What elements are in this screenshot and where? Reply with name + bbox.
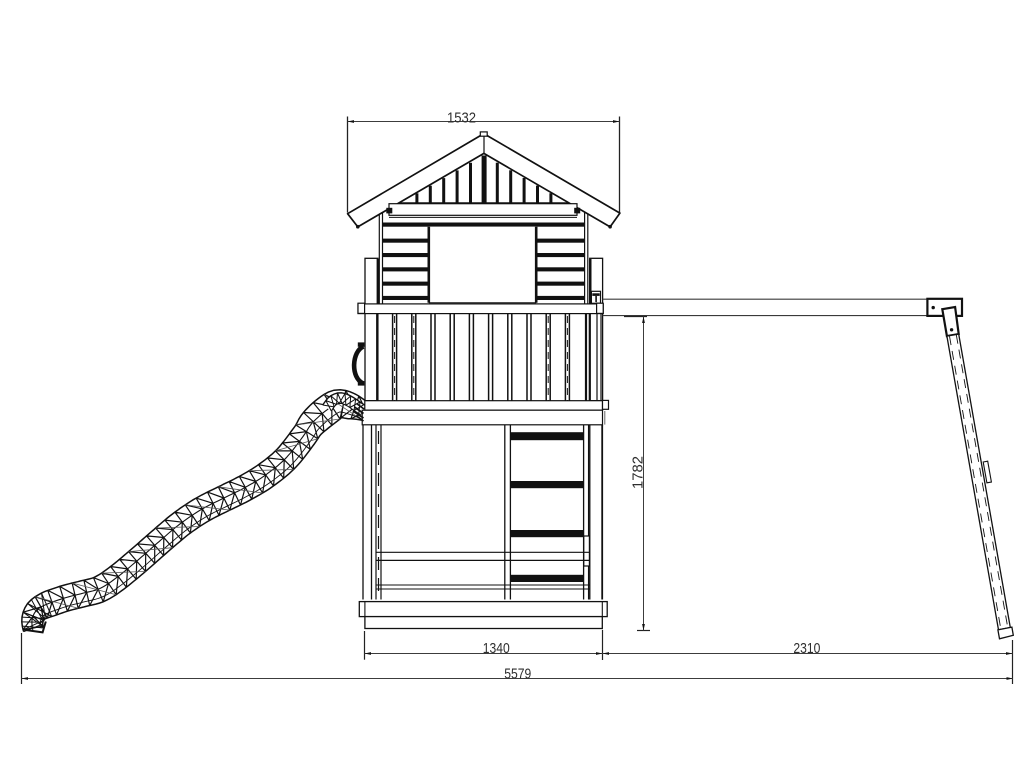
svg-text:5579: 5579 [504,665,531,682]
svg-text:1532: 1532 [447,109,476,126]
svg-text:2310: 2310 [793,640,820,657]
svg-text:1340: 1340 [483,640,510,657]
svg-text:1782: 1782 [630,456,647,489]
